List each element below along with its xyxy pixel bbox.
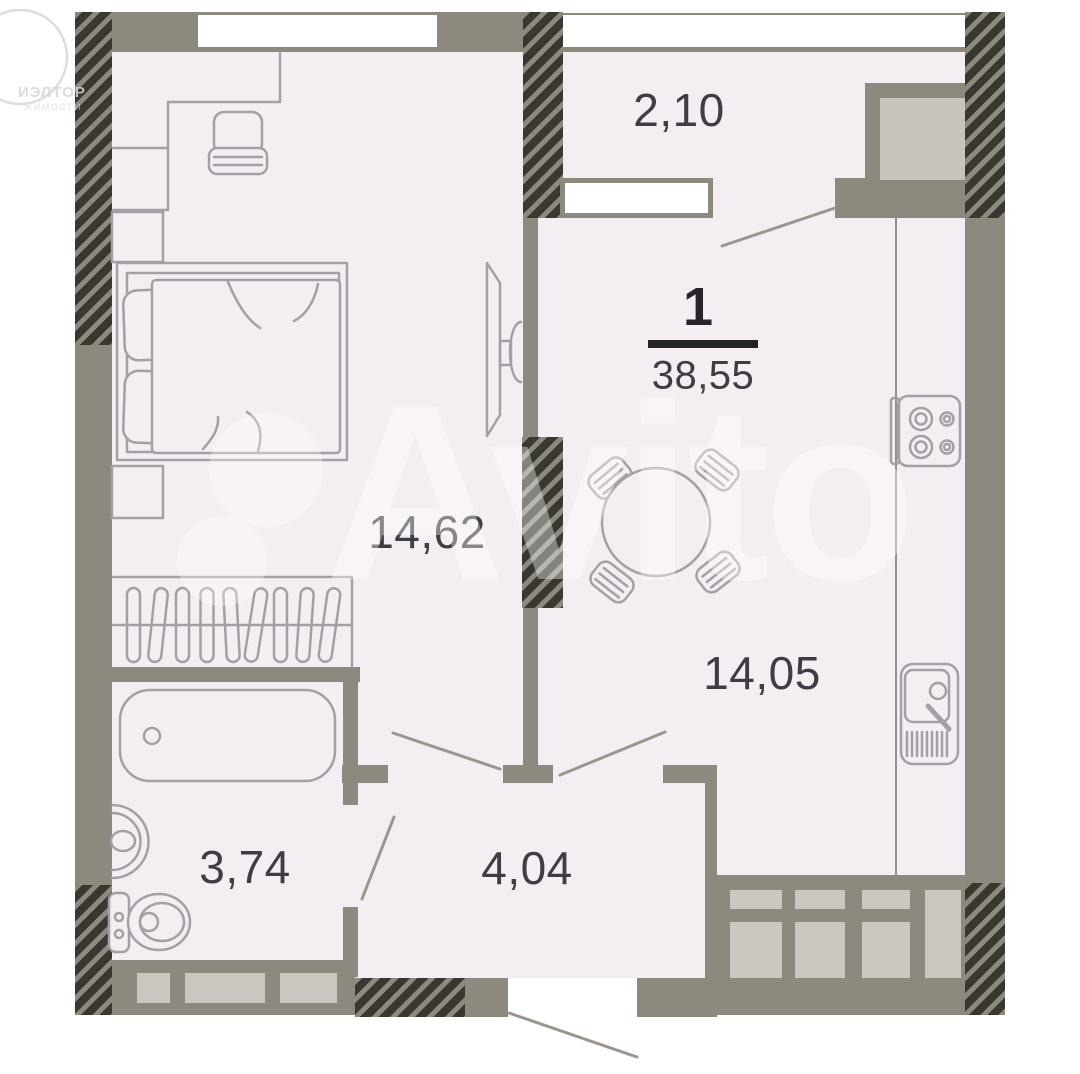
floorplan-canvas: 2,10 14,62 14,05 3,74 4,04 1 38,55 Avito… (0, 0, 1080, 1074)
wall-partition-hatched (522, 437, 563, 608)
window-block-panel (862, 922, 910, 978)
wall-niche (280, 973, 337, 1003)
agency-watermark-line2: ЖИМОСТИ (24, 102, 82, 112)
window-bedroom (198, 13, 437, 52)
window-block-panel (795, 922, 845, 978)
rooms-count-label: 1 (683, 276, 713, 338)
wall-niche (185, 973, 265, 1003)
window-balcony (563, 13, 965, 52)
wall-center-column-hatched (523, 12, 563, 218)
wall-right-bottom-hatched (965, 883, 1005, 1015)
window-block-panel (730, 890, 782, 909)
door-swing-entrance (509, 1013, 637, 1057)
wall-partition-upper (523, 218, 538, 437)
window-living-balcony (560, 178, 713, 218)
wall-niche (137, 973, 170, 1003)
wall-right (965, 218, 1005, 883)
wall-entrance-hatched (355, 978, 465, 1017)
wall-left-middle (75, 345, 112, 885)
room-area-label-bathroom: 3,74 (199, 840, 291, 894)
wall-kitchen-window-top (717, 875, 965, 883)
wall-entrance-left (465, 978, 508, 1017)
wall-left-top-hatched (75, 12, 112, 345)
window-block-panel (730, 922, 782, 978)
wall-balcony-living (835, 178, 965, 218)
window-block-panel (795, 890, 845, 909)
window-block-panel (925, 890, 961, 978)
shaft-duct (880, 98, 965, 180)
wall-bathroom-top (112, 667, 360, 682)
room-area-label-kitchen-living: 14,05 (703, 646, 821, 700)
wall-partition-lower (523, 608, 538, 768)
wall-left-bottom-hatched (75, 885, 112, 1015)
total-area-divider (648, 340, 758, 348)
agency-logo-circle (0, 10, 67, 104)
room-area-label-hallway: 4,04 (481, 841, 573, 895)
wall-hallway-right (705, 783, 717, 980)
wall-hallway-stub-center (503, 765, 553, 783)
wall-hallway-stub-right (663, 765, 717, 783)
window-block-panel (862, 890, 910, 909)
wall-right-top-hatched (965, 12, 1005, 218)
wall-bathroom-right-upper (343, 682, 358, 805)
room-area-label-balcony: 2,10 (633, 83, 725, 137)
room-area-label-bedroom: 14,62 (368, 505, 486, 559)
wall-entrance-right (637, 978, 717, 1017)
total-area-label: 38,55 (652, 354, 755, 399)
